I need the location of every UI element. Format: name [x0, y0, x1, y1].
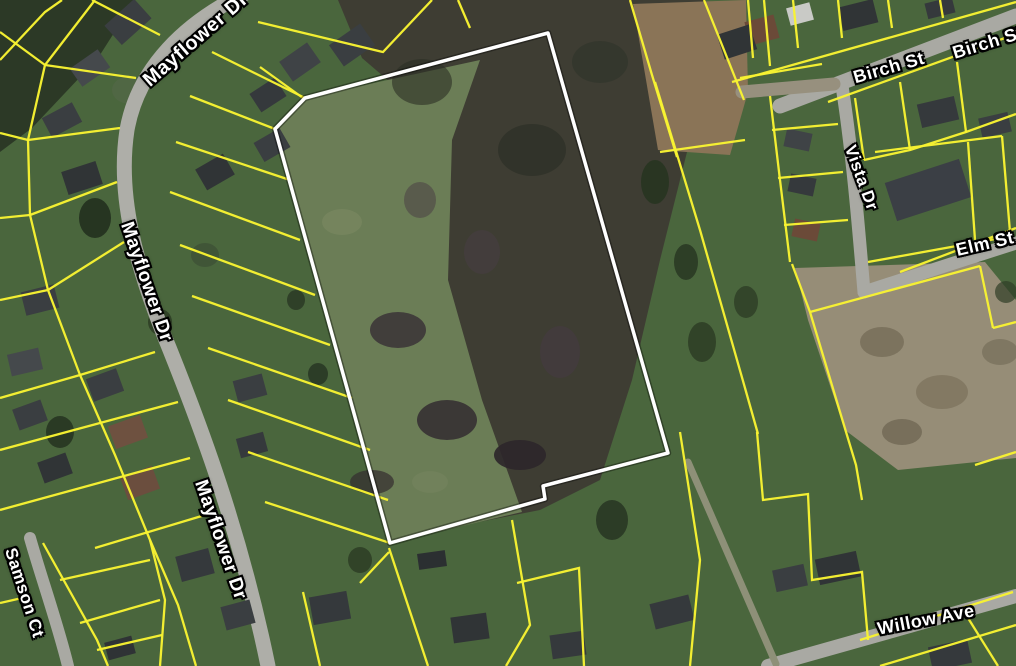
vegetation-blob	[916, 375, 968, 409]
satellite-map-canvas[interactable]: Mayflower DrMayflower DrMayflower DrSams…	[0, 0, 1016, 666]
vegetation-blob	[498, 124, 566, 176]
vegetation-blob	[464, 230, 500, 274]
vegetation-blob	[572, 41, 628, 83]
vegetation-blob	[995, 281, 1016, 303]
vegetation-blob	[348, 547, 372, 573]
vegetation-blob	[734, 286, 758, 318]
road-gravel-area	[742, 84, 834, 92]
vegetation-blob	[412, 471, 448, 493]
vegetation-blob	[404, 182, 436, 218]
vegetation-blob	[540, 326, 580, 378]
vegetation-blob	[494, 440, 546, 470]
vegetation-blob	[674, 244, 698, 280]
vegetation-blob	[308, 363, 328, 385]
vegetation-blob	[860, 327, 904, 357]
building-roof	[450, 613, 489, 644]
vegetation-blob	[596, 500, 628, 540]
building-roof	[549, 631, 586, 659]
vegetation-blob	[417, 400, 477, 440]
vegetation-blob	[322, 209, 362, 235]
map-imagery-layer	[0, 0, 1016, 666]
vegetation-blob	[641, 160, 669, 204]
vegetation-blob	[688, 322, 716, 362]
vegetation-blob	[79, 198, 111, 238]
vegetation-blob	[287, 290, 305, 310]
vegetation-blob	[882, 419, 922, 445]
vegetation-blob	[370, 312, 426, 348]
